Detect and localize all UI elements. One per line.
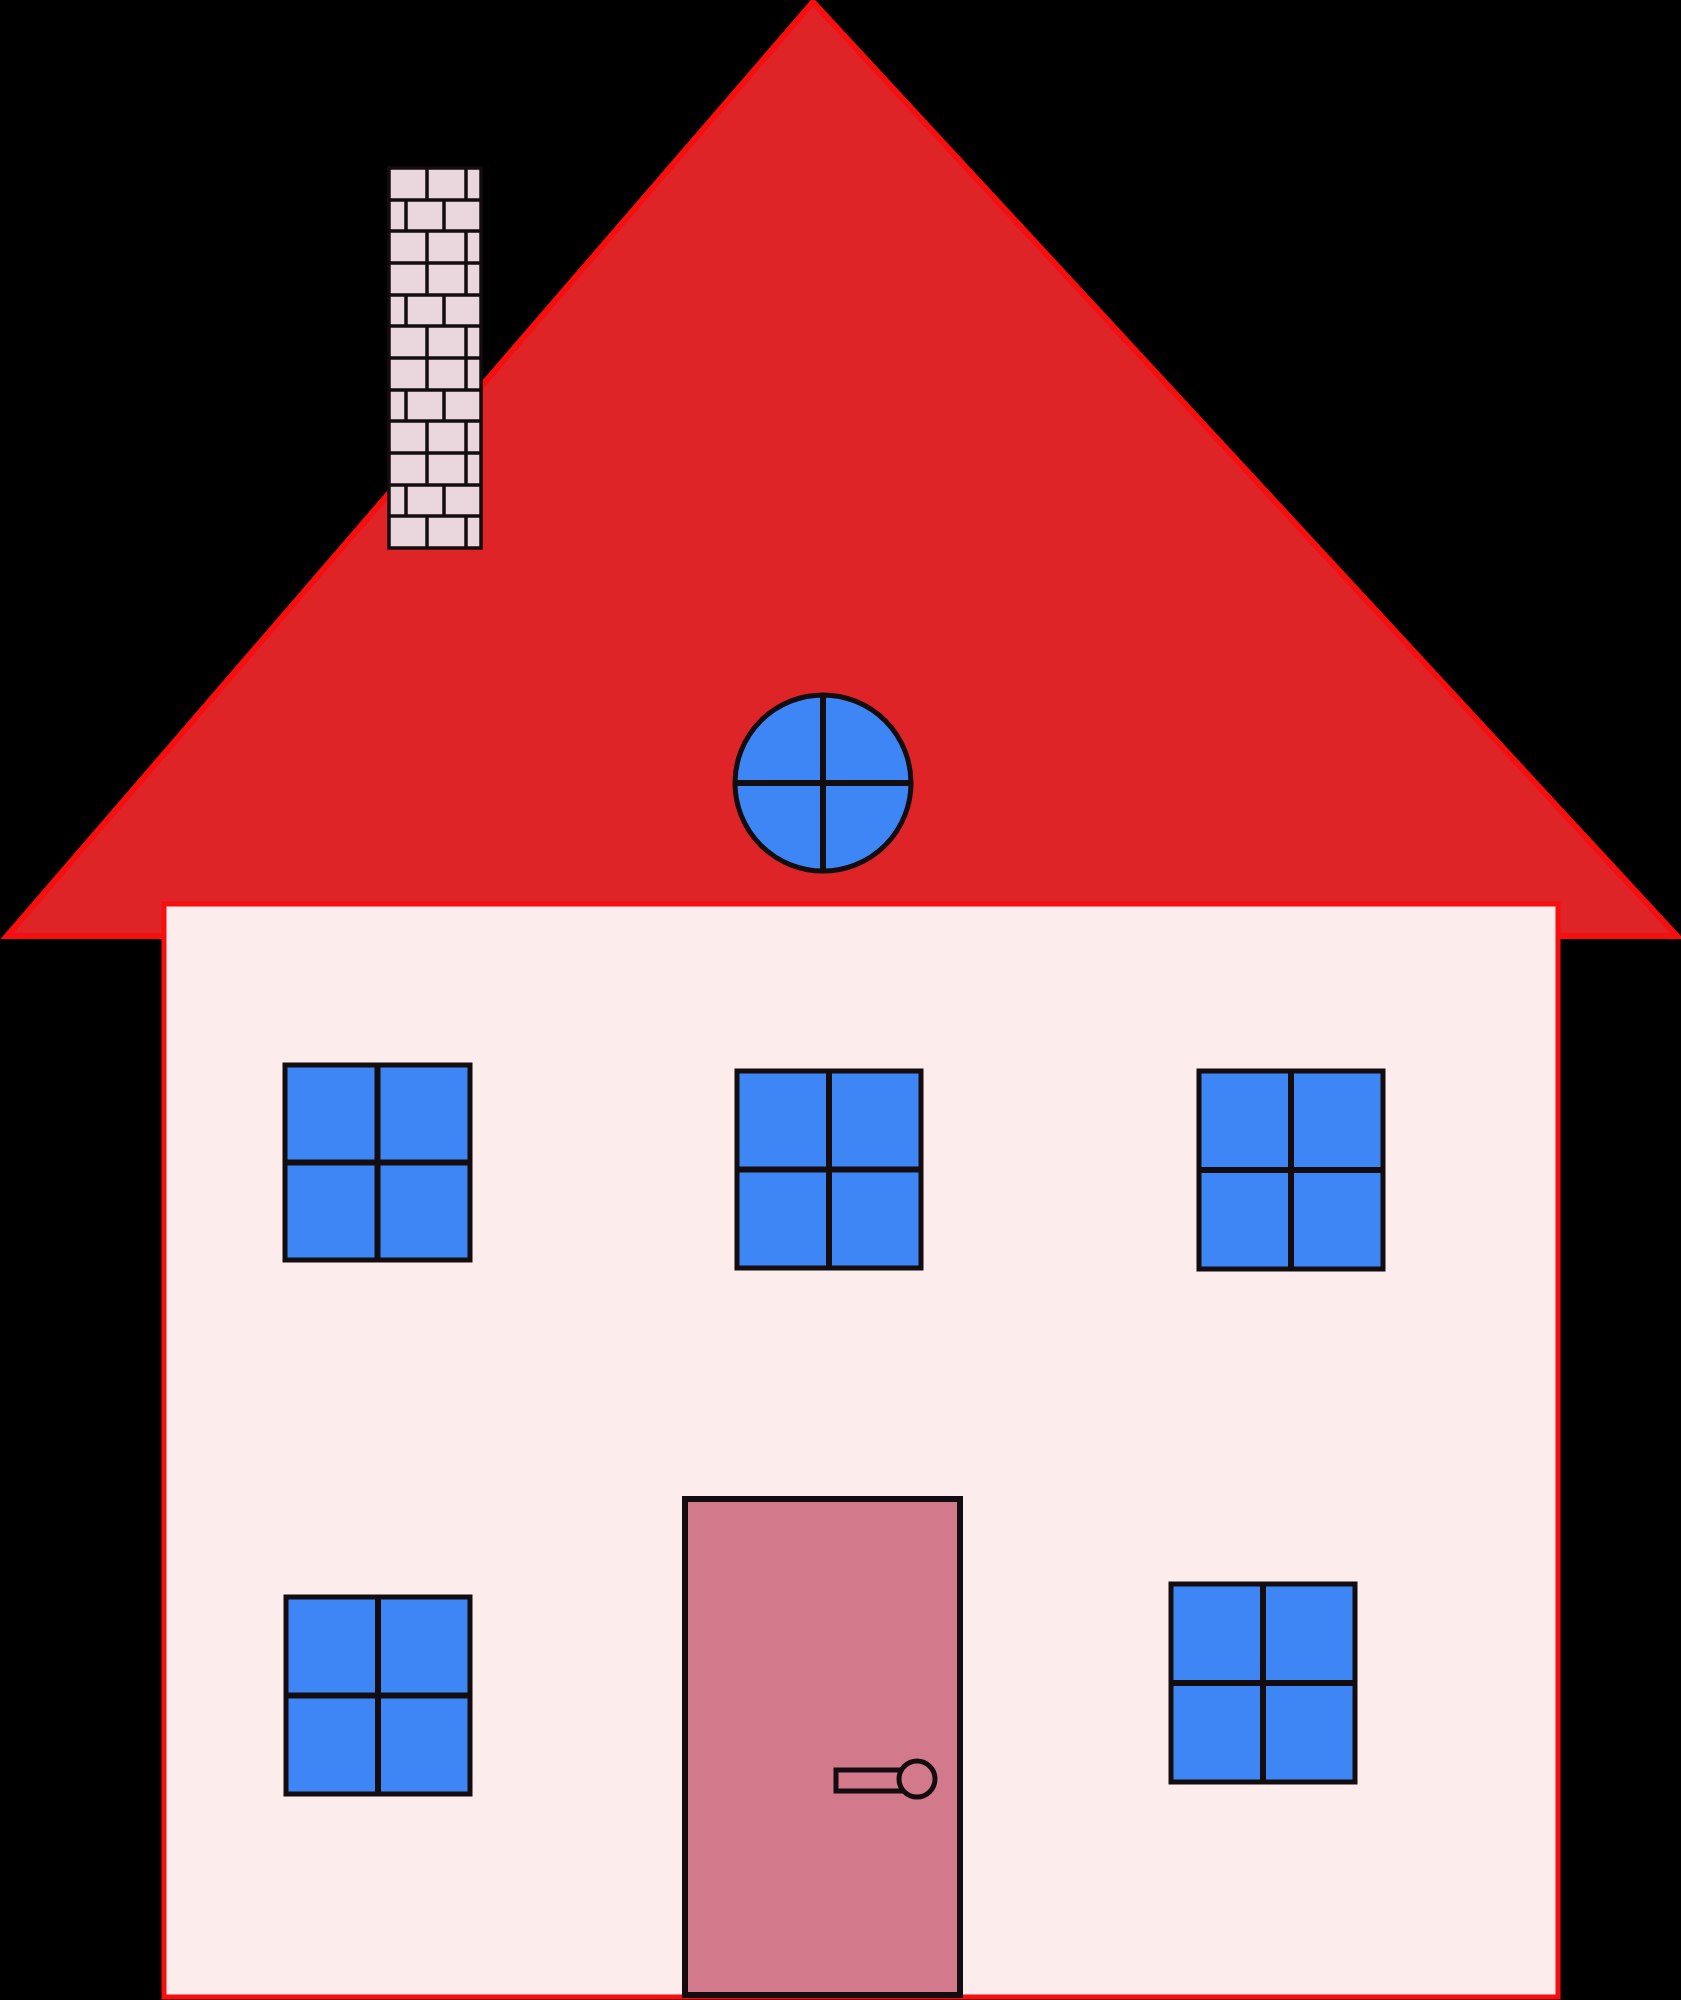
window-bottom-left	[286, 1597, 470, 1794]
door-panel	[685, 1499, 960, 1995]
door	[685, 1499, 960, 1995]
window-bottom-right	[1171, 1584, 1355, 1782]
round-attic-window	[735, 695, 911, 871]
window-top-middle	[737, 1071, 921, 1268]
canvas	[0, 0, 1681, 2000]
house-illustration	[0, 0, 1681, 2000]
window-top-right	[1199, 1071, 1383, 1269]
window-top-left	[285, 1065, 470, 1260]
chimney	[389, 168, 481, 548]
door-handle-knob	[899, 1761, 935, 1797]
door-handle-bar	[836, 1770, 906, 1791]
